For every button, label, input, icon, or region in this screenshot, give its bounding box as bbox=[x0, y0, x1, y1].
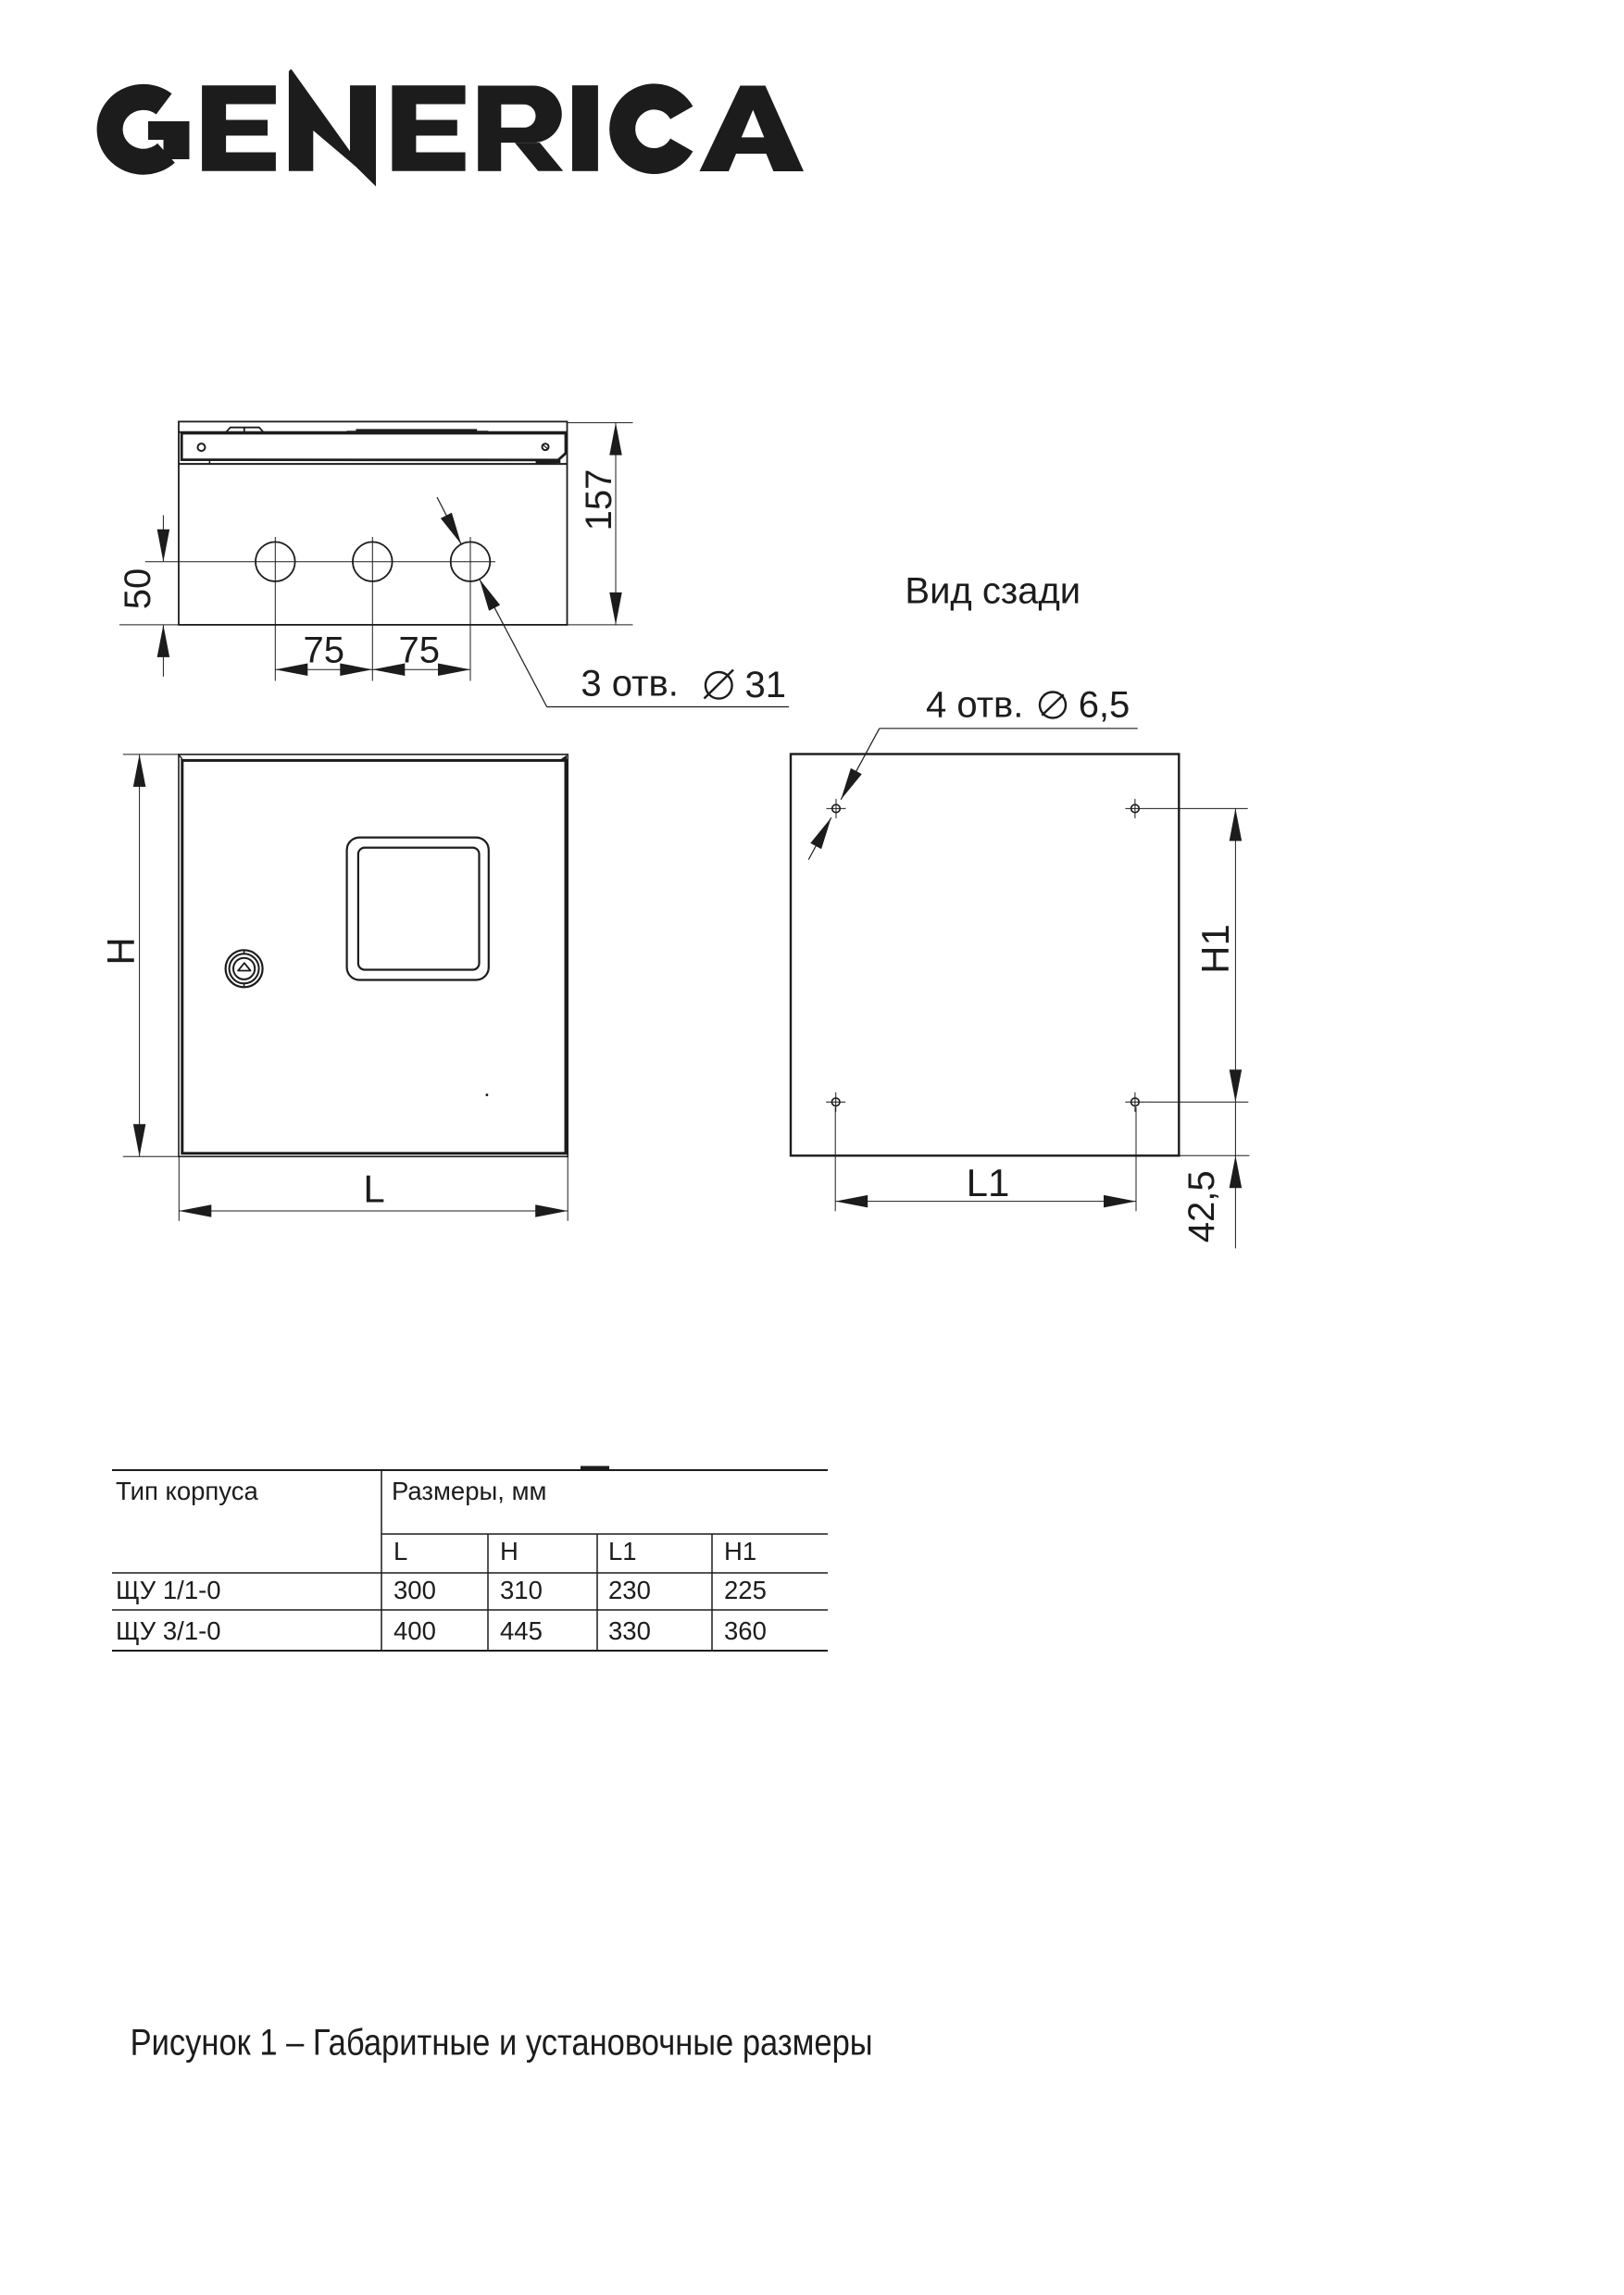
svg-text:H1: H1 bbox=[1193, 924, 1237, 974]
svg-text:L1: L1 bbox=[967, 1161, 1010, 1204]
svg-text:4 отв.: 4 отв. bbox=[926, 684, 1023, 725]
svg-text:H: H bbox=[500, 1537, 518, 1565]
svg-text:42,5: 42,5 bbox=[1181, 1170, 1222, 1242]
svg-text:225: 225 bbox=[724, 1576, 767, 1604]
svg-text:Рисунок 1 – Габаритные и устан: Рисунок 1 – Габаритные и установочные ра… bbox=[131, 2022, 873, 2063]
svg-text:230: 230 bbox=[608, 1576, 651, 1604]
svg-text:Вид сзади: Вид сзади bbox=[905, 571, 1081, 612]
svg-text:3 отв.: 3 отв. bbox=[581, 664, 678, 705]
svg-text:310: 310 bbox=[500, 1576, 543, 1604]
svg-text:157: 157 bbox=[579, 469, 619, 531]
svg-text:330: 330 bbox=[608, 1616, 651, 1645]
svg-text:400: 400 bbox=[394, 1616, 436, 1645]
svg-text:300: 300 bbox=[394, 1576, 436, 1604]
svg-text:50: 50 bbox=[118, 568, 158, 610]
svg-text:L1: L1 bbox=[608, 1537, 637, 1565]
svg-text:ЩУ 3/1-0: ЩУ 3/1-0 bbox=[116, 1616, 221, 1645]
svg-text:75: 75 bbox=[399, 630, 441, 670]
svg-text:360: 360 bbox=[724, 1616, 767, 1645]
svg-text:31: 31 bbox=[745, 665, 787, 705]
svg-text:L: L bbox=[394, 1537, 407, 1565]
svg-text:6,5: 6,5 bbox=[1079, 684, 1131, 725]
svg-text:75: 75 bbox=[304, 630, 345, 670]
svg-text:445: 445 bbox=[500, 1616, 543, 1645]
svg-text:ЩУ 1/1-0: ЩУ 1/1-0 bbox=[116, 1576, 221, 1604]
svg-text:H1: H1 bbox=[724, 1537, 756, 1565]
svg-text:Тип корпуса: Тип корпуса bbox=[116, 1477, 258, 1505]
svg-text:L: L bbox=[363, 1167, 384, 1211]
svg-text:H: H bbox=[99, 937, 143, 965]
svg-text:Размеры, мм: Размеры, мм bbox=[392, 1477, 546, 1505]
